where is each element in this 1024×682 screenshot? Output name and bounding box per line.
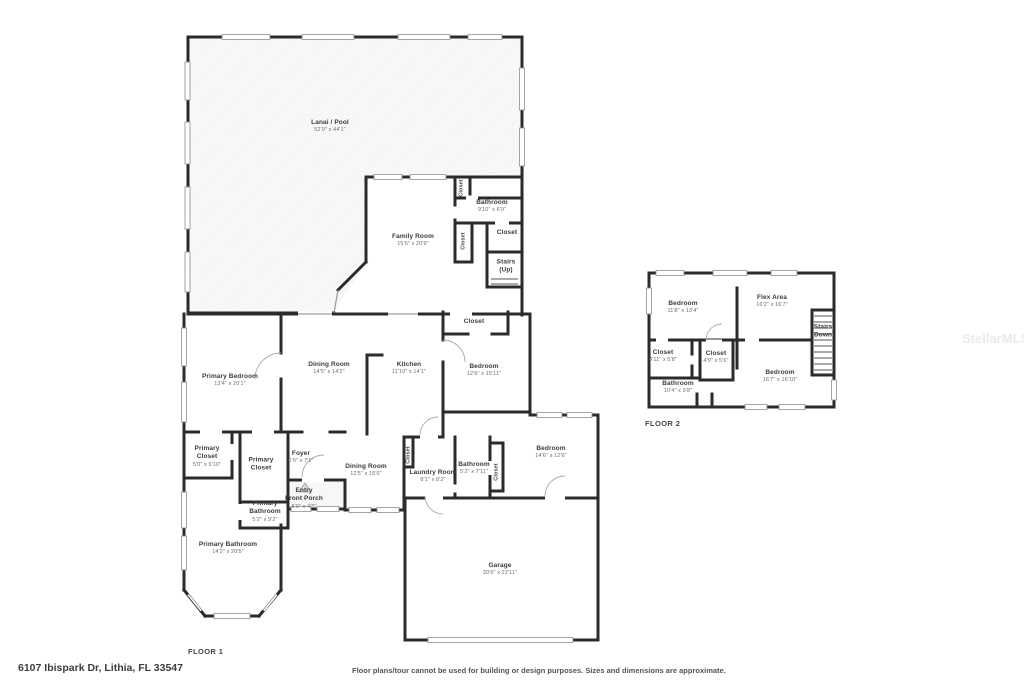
property-address: 6107 Ibispark Dr, Lithia, FL 33547 — [18, 662, 183, 674]
floorplan-drawing — [0, 0, 1024, 682]
floor2-tag: FLOOR 2 — [645, 419, 680, 428]
floor1-tag: FLOOR 1 — [188, 647, 223, 656]
floor2-walls — [649, 273, 834, 407]
stellar-mls-watermark: StellarMLS — [962, 331, 1024, 346]
disclaimer-text: Floor plans/tour cannot be used for buil… — [352, 666, 726, 675]
bay-windows — [189, 594, 276, 610]
floorplan-page: Lanai / Pool 52'9" x 44'1" Family Room 1… — [0, 0, 1024, 682]
stair-treads — [491, 279, 832, 370]
